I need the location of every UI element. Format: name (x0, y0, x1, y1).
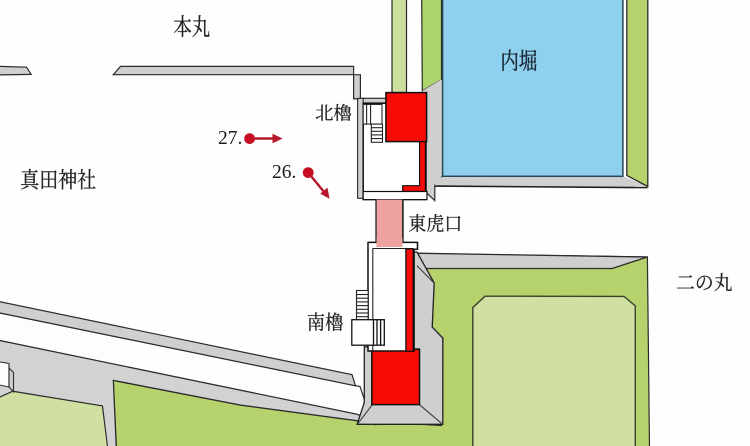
svg-text:26.: 26. (272, 162, 296, 183)
svg-text:27.: 27. (218, 128, 242, 149)
